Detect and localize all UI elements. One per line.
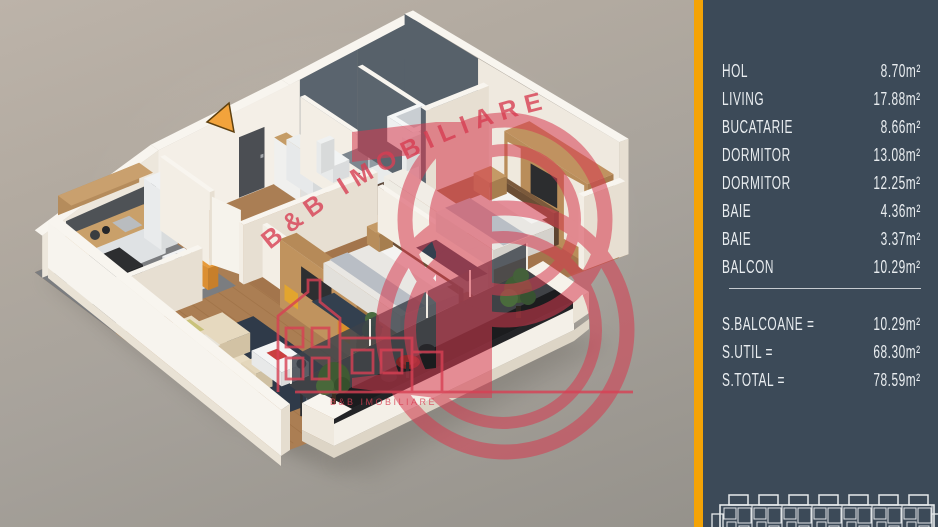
svg-text:B&B IMOBILIARE: B&B IMOBILIARE	[330, 397, 437, 407]
